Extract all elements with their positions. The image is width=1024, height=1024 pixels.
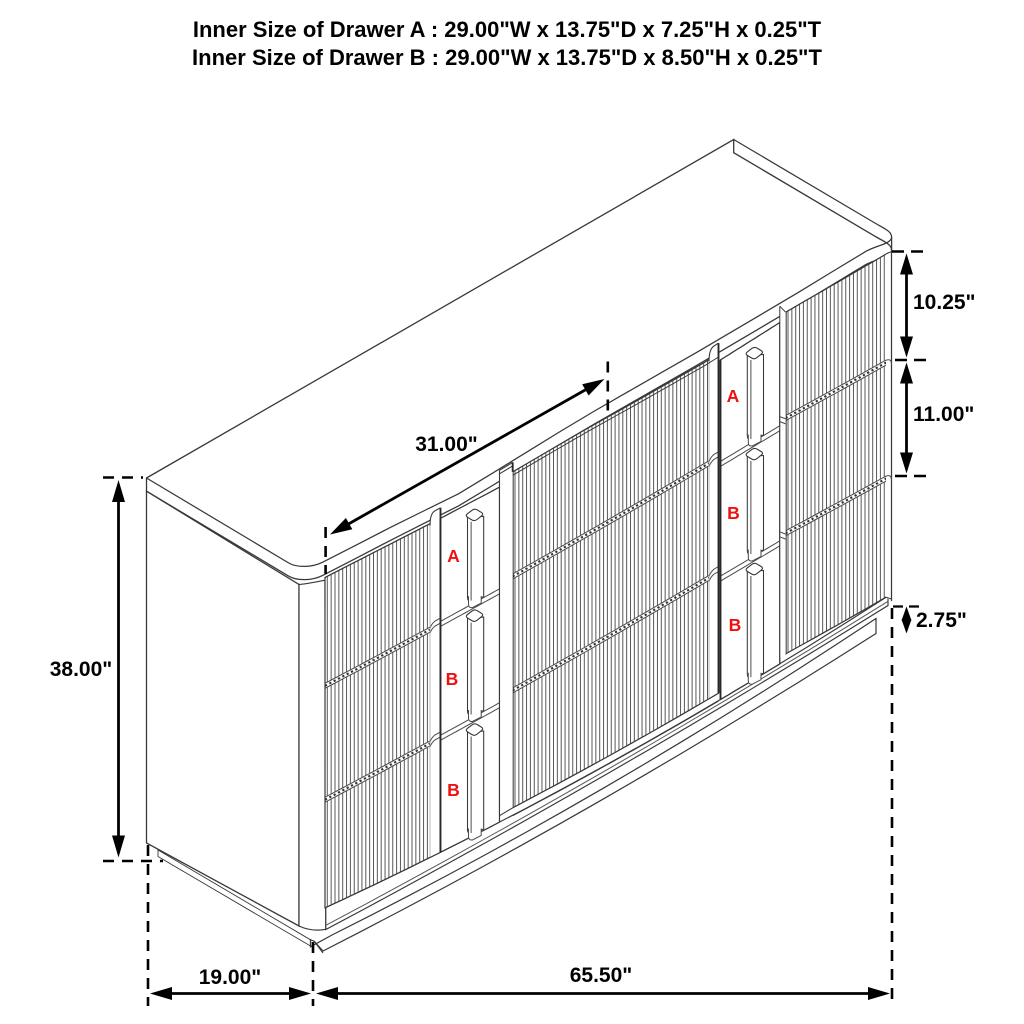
svg-text:Inner Size of Drawer B : 29.00: Inner Size of Drawer B : 29.00"W x 13.75… — [192, 45, 822, 70]
svg-text:A: A — [447, 546, 460, 566]
svg-text:A: A — [727, 386, 740, 406]
svg-text:31.00": 31.00" — [415, 433, 478, 456]
svg-text:B: B — [447, 780, 460, 800]
svg-text:19.00": 19.00" — [199, 966, 262, 989]
svg-text:B: B — [729, 615, 742, 635]
svg-text:Inner Size of Drawer A : 29.00: Inner Size of Drawer A : 29.00"W x 13.75… — [193, 17, 822, 42]
svg-text:B: B — [446, 669, 459, 689]
svg-text:38.00": 38.00" — [50, 658, 113, 681]
svg-text:B: B — [727, 503, 740, 523]
svg-text:11.00": 11.00" — [913, 403, 974, 426]
svg-text:65.50": 65.50" — [570, 964, 633, 987]
svg-text:2.75": 2.75" — [916, 609, 967, 632]
svg-text:10.25": 10.25" — [913, 291, 976, 314]
